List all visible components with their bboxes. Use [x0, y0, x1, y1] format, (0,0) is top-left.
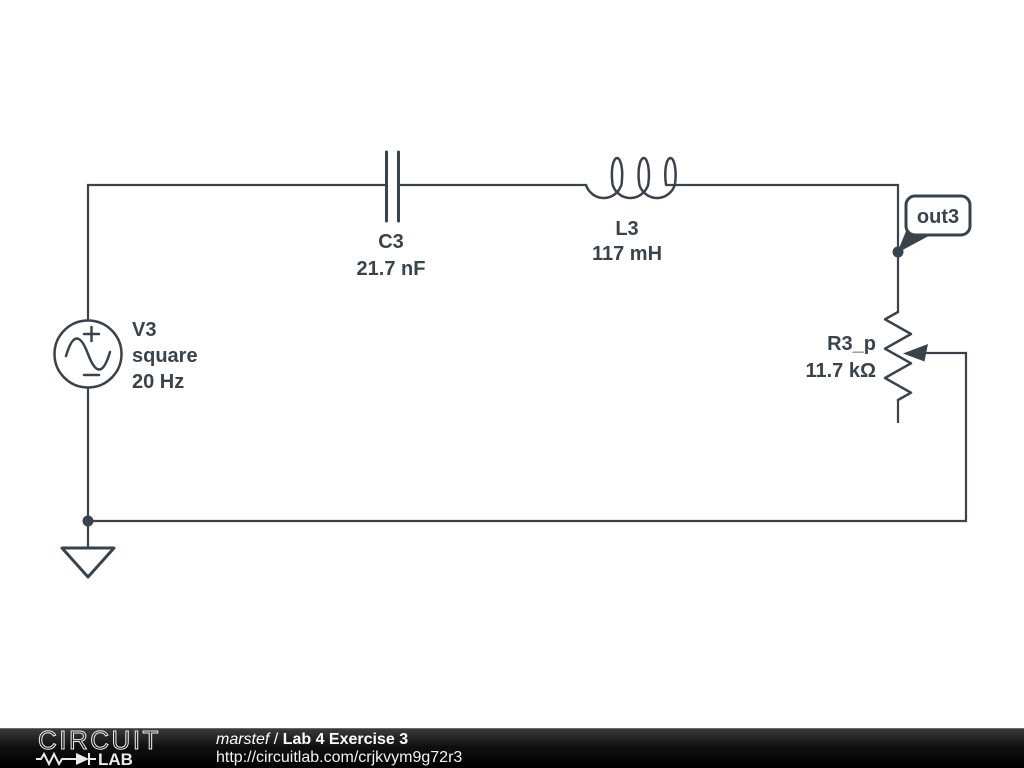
net-flag-label: out3	[917, 206, 959, 228]
footer-bar: CIRCUIT LAB marstef / Lab 4 Exercise 3 h…	[0, 728, 1024, 768]
schematic-title: Lab 4 Exercise 3	[283, 731, 408, 748]
resistor-zigzag	[885, 312, 911, 400]
inductor-name-label: L3	[615, 218, 638, 240]
inductor-value-label: 117 mH	[592, 243, 662, 265]
logo-lab-text: LAB	[98, 750, 133, 766]
ground-symbol[interactable]	[62, 548, 114, 577]
net-flag-out3[interactable]: out3	[897, 196, 970, 253]
schematic-url[interactable]: http://circuitlab.com/crjkvym9g72r3	[216, 749, 1024, 767]
potentiometer-r3p[interactable]: R3_p 11.7 kΩ	[805, 312, 928, 400]
inductor-l3[interactable]: L3 117 mH	[586, 158, 676, 265]
capacitor-name-label: C3	[378, 231, 404, 253]
author-name: marstef	[216, 731, 269, 748]
ground-triangle-icon	[62, 548, 114, 577]
footer-title-line: marstef / Lab 4 Exercise 3	[216, 731, 1024, 749]
capacitor-plates	[387, 152, 399, 221]
circuitlab-schematic-export: V3 square 20 Hz C3 21.7 nF L3 117 mH R3_…	[0, 0, 1024, 768]
circuitlab-logo: CIRCUIT LAB	[0, 726, 216, 768]
capacitor-value-label: 21.7 nF	[357, 258, 426, 280]
potentiometer-name-label: R3_p	[827, 333, 876, 355]
voltage-source-v3[interactable]: V3 square 20 Hz	[55, 319, 198, 393]
source-waveform-label: square	[132, 345, 198, 367]
source-frequency-label: 20 Hz	[132, 371, 184, 393]
footer-meta: marstef / Lab 4 Exercise 3 http://circui…	[216, 730, 1024, 767]
schematic-canvas: V3 square 20 Hz C3 21.7 nF L3 117 mH R3_…	[0, 0, 1024, 728]
inductor-coil	[586, 158, 676, 198]
node-dot-ground	[83, 516, 94, 527]
separator: /	[269, 731, 282, 748]
wire-coil-to-corner	[666, 185, 898, 312]
wire-top-left	[88, 185, 386, 320]
source-name-label: V3	[132, 319, 156, 341]
potentiometer-value-label: 11.7 kΩ	[805, 360, 876, 382]
capacitor-c3[interactable]: C3 21.7 nF	[357, 152, 426, 280]
wiper-arrow-icon	[903, 344, 928, 362]
